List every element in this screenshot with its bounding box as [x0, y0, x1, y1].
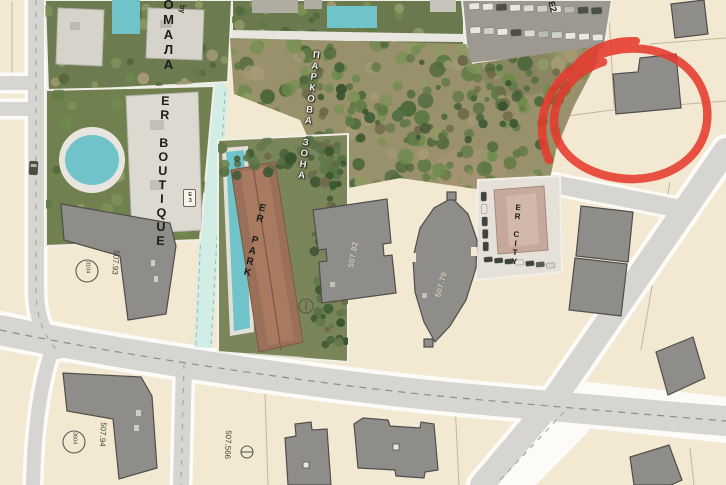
car-icon — [29, 161, 39, 175]
survey-marker-number: 3104 — [84, 261, 90, 273]
building-footprint — [576, 206, 633, 262]
building-footprint — [671, 0, 708, 38]
building-footprint — [569, 258, 627, 316]
pool — [65, 135, 119, 185]
pool — [327, 6, 377, 28]
map-canvas — [0, 0, 726, 485]
elevation-label: 507.94 — [98, 422, 107, 447]
site-plan-map[interactable]: ОМАЛА by ER BOUTIQUE ПАРКОВА ЗОНА ER PAR… — [0, 0, 726, 485]
pool — [112, 0, 140, 34]
elevation-label: 507.93 — [110, 250, 120, 275]
elevation-label: 507.566 — [223, 430, 232, 459]
label-residence-by: by — [178, 5, 185, 13]
survey-marker-number: 3604 — [71, 432, 77, 444]
label-block-e3: ЕЗ — [183, 189, 196, 207]
label-residence-omala: ОМАЛА — [162, 0, 175, 72]
aerial-photo-omala-block — [41, 0, 232, 92]
